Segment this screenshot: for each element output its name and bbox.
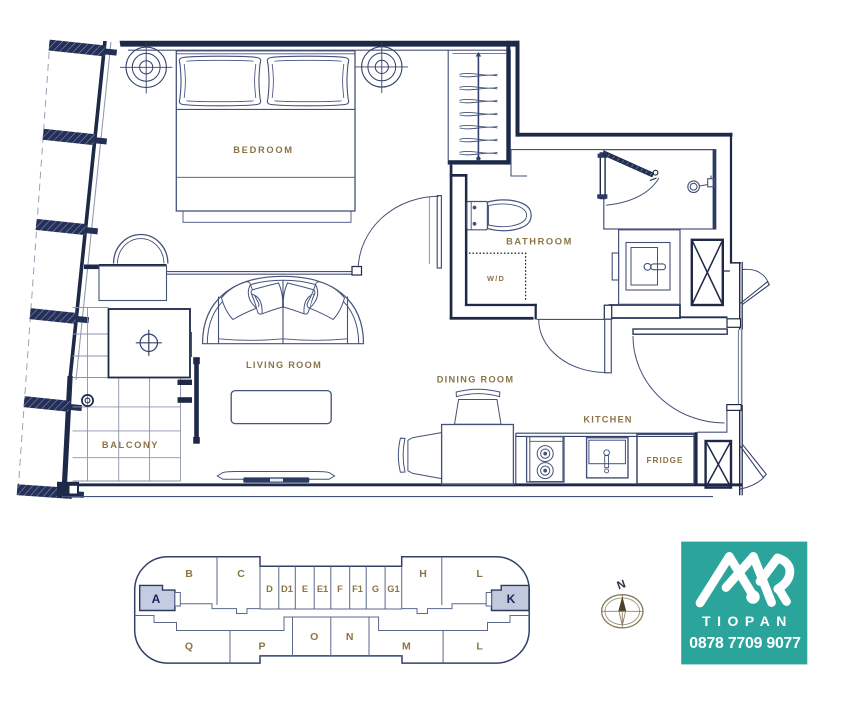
svg-text:KITCHEN: KITCHEN	[583, 415, 632, 425]
svg-text:LIVING ROOM: LIVING ROOM	[246, 360, 322, 370]
svg-text:F: F	[337, 584, 343, 594]
svg-text:D: D	[266, 584, 273, 594]
svg-text:C: C	[237, 568, 245, 580]
svg-text:B: B	[185, 568, 193, 580]
svg-text:Q: Q	[185, 641, 193, 653]
svg-text:E1: E1	[317, 584, 328, 594]
svg-text:E: E	[302, 584, 308, 594]
svg-text:K: K	[507, 592, 516, 606]
svg-text:BALCONY: BALCONY	[102, 440, 159, 450]
svg-text:N: N	[346, 631, 354, 643]
svg-text:P: P	[258, 641, 265, 653]
svg-text:0878 7709 9077: 0878 7709 9077	[689, 635, 801, 652]
svg-text:G: G	[372, 584, 379, 594]
svg-text:N: N	[616, 578, 628, 592]
svg-text:FRIDGE: FRIDGE	[647, 456, 684, 465]
svg-text:BATHROOM: BATHROOM	[506, 237, 573, 247]
svg-text:D1: D1	[281, 584, 293, 594]
svg-text:L: L	[476, 568, 483, 580]
svg-text:L: L	[476, 641, 483, 653]
svg-text:DINING ROOM: DINING ROOM	[437, 374, 515, 384]
svg-text:W/D: W/D	[487, 274, 505, 283]
svg-text:TIOPAN: TIOPAN	[702, 613, 793, 629]
svg-text:F1: F1	[352, 584, 363, 594]
svg-text:H: H	[419, 568, 427, 580]
svg-text:O: O	[310, 631, 318, 643]
svg-text:A: A	[152, 592, 161, 606]
svg-text:G1: G1	[387, 584, 399, 594]
svg-text:BEDROOM: BEDROOM	[233, 145, 293, 155]
svg-text:M: M	[402, 641, 411, 653]
